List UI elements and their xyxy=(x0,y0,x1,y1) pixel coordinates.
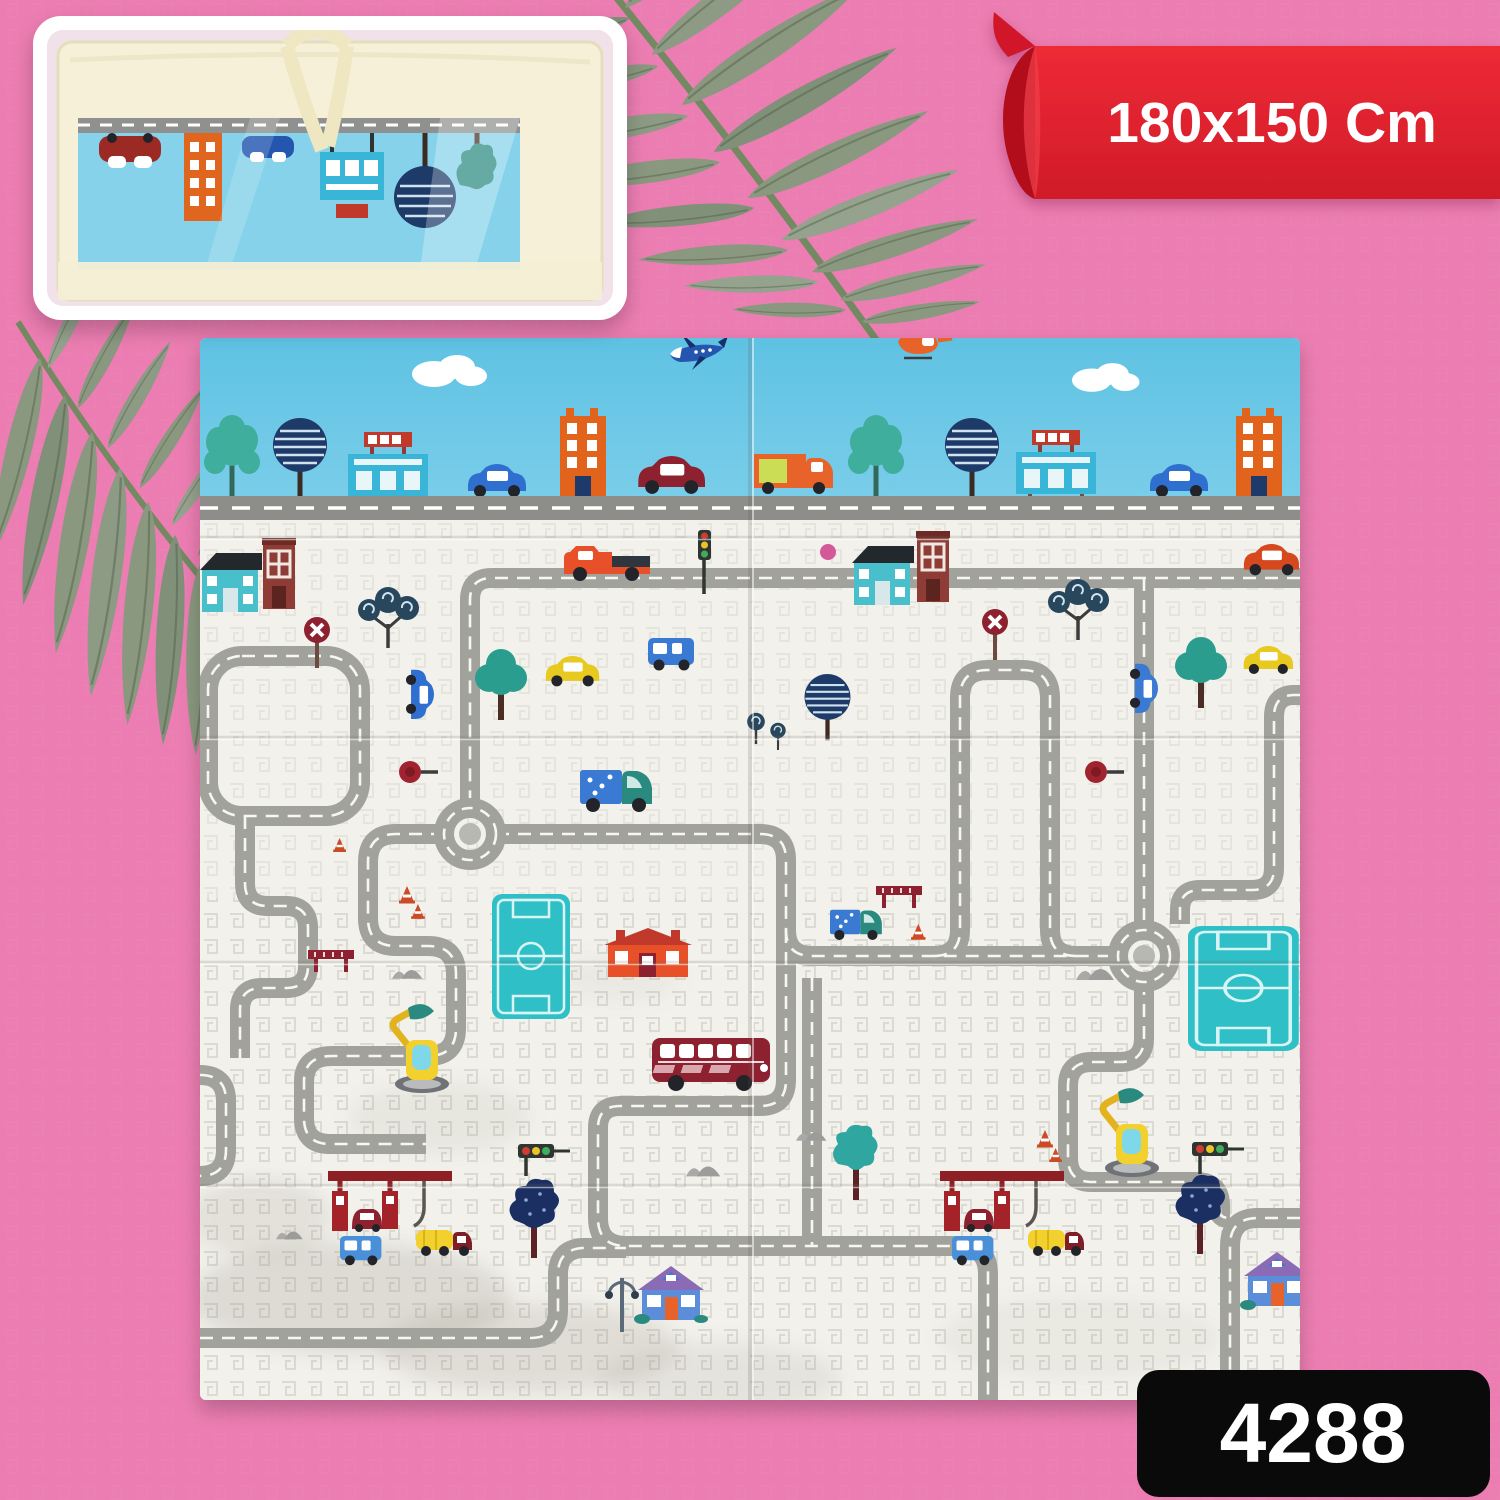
roundabout-icon xyxy=(444,808,496,860)
packed-mat-inset xyxy=(33,16,627,320)
van-icon xyxy=(754,454,833,494)
sku-number: 4288 xyxy=(1220,1386,1407,1480)
sign-icon xyxy=(820,544,836,560)
product-photo: 180x150 Cm 4288 xyxy=(0,0,1500,1500)
teal-house-icon xyxy=(852,546,914,605)
tanker-truck-icon xyxy=(416,1230,472,1256)
orange-building-icon xyxy=(560,408,606,496)
orange-building-icon xyxy=(1236,408,1282,496)
football-field-icon xyxy=(492,894,570,1019)
tanker-truck-icon xyxy=(1028,1230,1084,1256)
play-mat xyxy=(190,326,1314,1413)
product-photo-stage: 180x150 Cm 4288 xyxy=(0,0,1500,1500)
football-field-icon xyxy=(1188,926,1299,1051)
size-label: 180x150 Cm xyxy=(1107,91,1437,155)
roundabout-icon xyxy=(1118,930,1170,982)
orange-building-icon xyxy=(184,133,222,221)
red-house-icon xyxy=(604,928,692,977)
brick-building-icon xyxy=(916,531,950,602)
brick-building-icon xyxy=(262,538,296,609)
bag-window-folded-mat xyxy=(78,118,520,270)
teal-house-icon xyxy=(200,553,262,612)
sku-badge: 4288 xyxy=(1137,1370,1490,1497)
